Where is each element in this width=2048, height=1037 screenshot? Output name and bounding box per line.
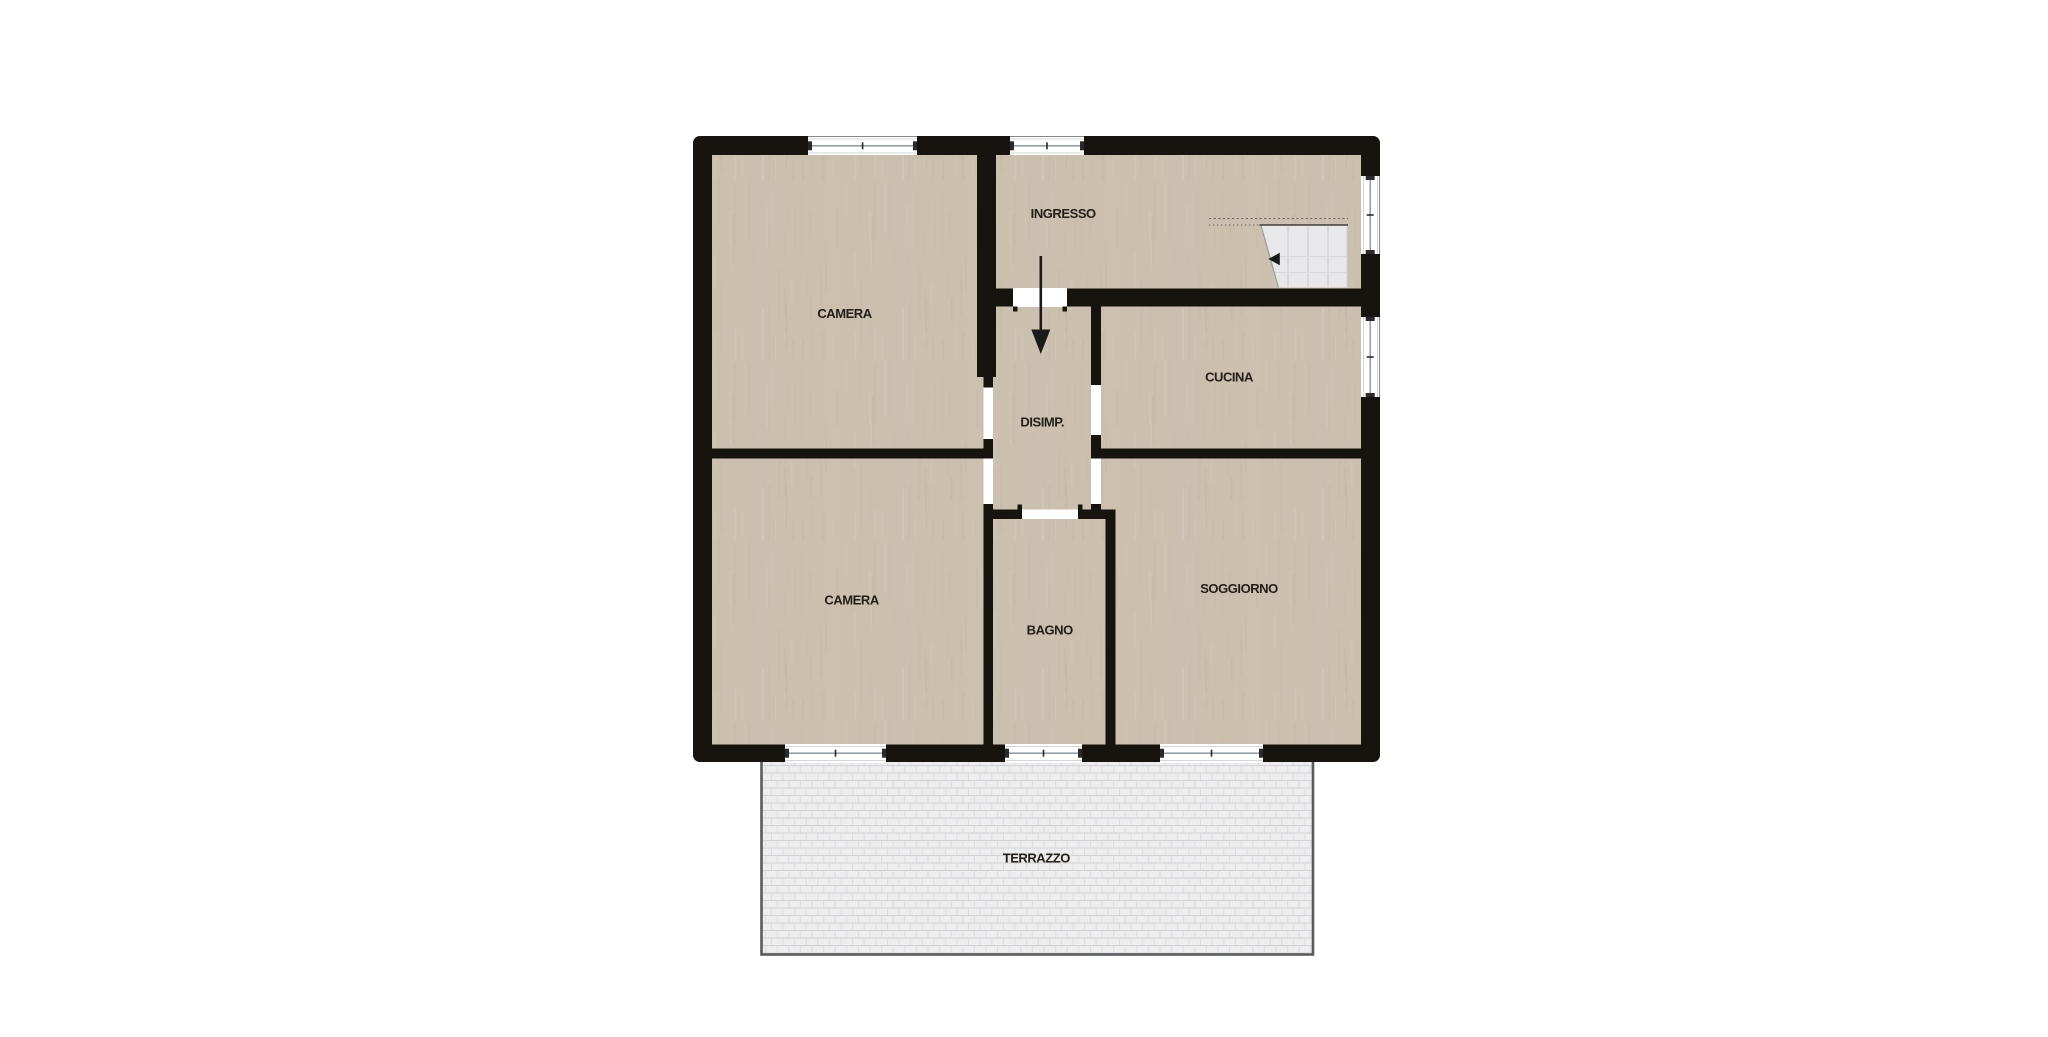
svg-text:TERRAZZO: TERRAZZO	[1003, 851, 1071, 866]
svg-text:CAMERA: CAMERA	[817, 306, 872, 321]
svg-text:BAGNO: BAGNO	[1027, 622, 1073, 637]
svg-text:CUCINA: CUCINA	[1205, 370, 1254, 385]
svg-text:CAMERA: CAMERA	[824, 593, 879, 608]
svg-text:DISIMP.: DISIMP.	[1020, 415, 1064, 430]
svg-text:SOGGIORNO: SOGGIORNO	[1200, 581, 1278, 596]
svg-text:INGRESSO: INGRESSO	[1031, 206, 1096, 221]
